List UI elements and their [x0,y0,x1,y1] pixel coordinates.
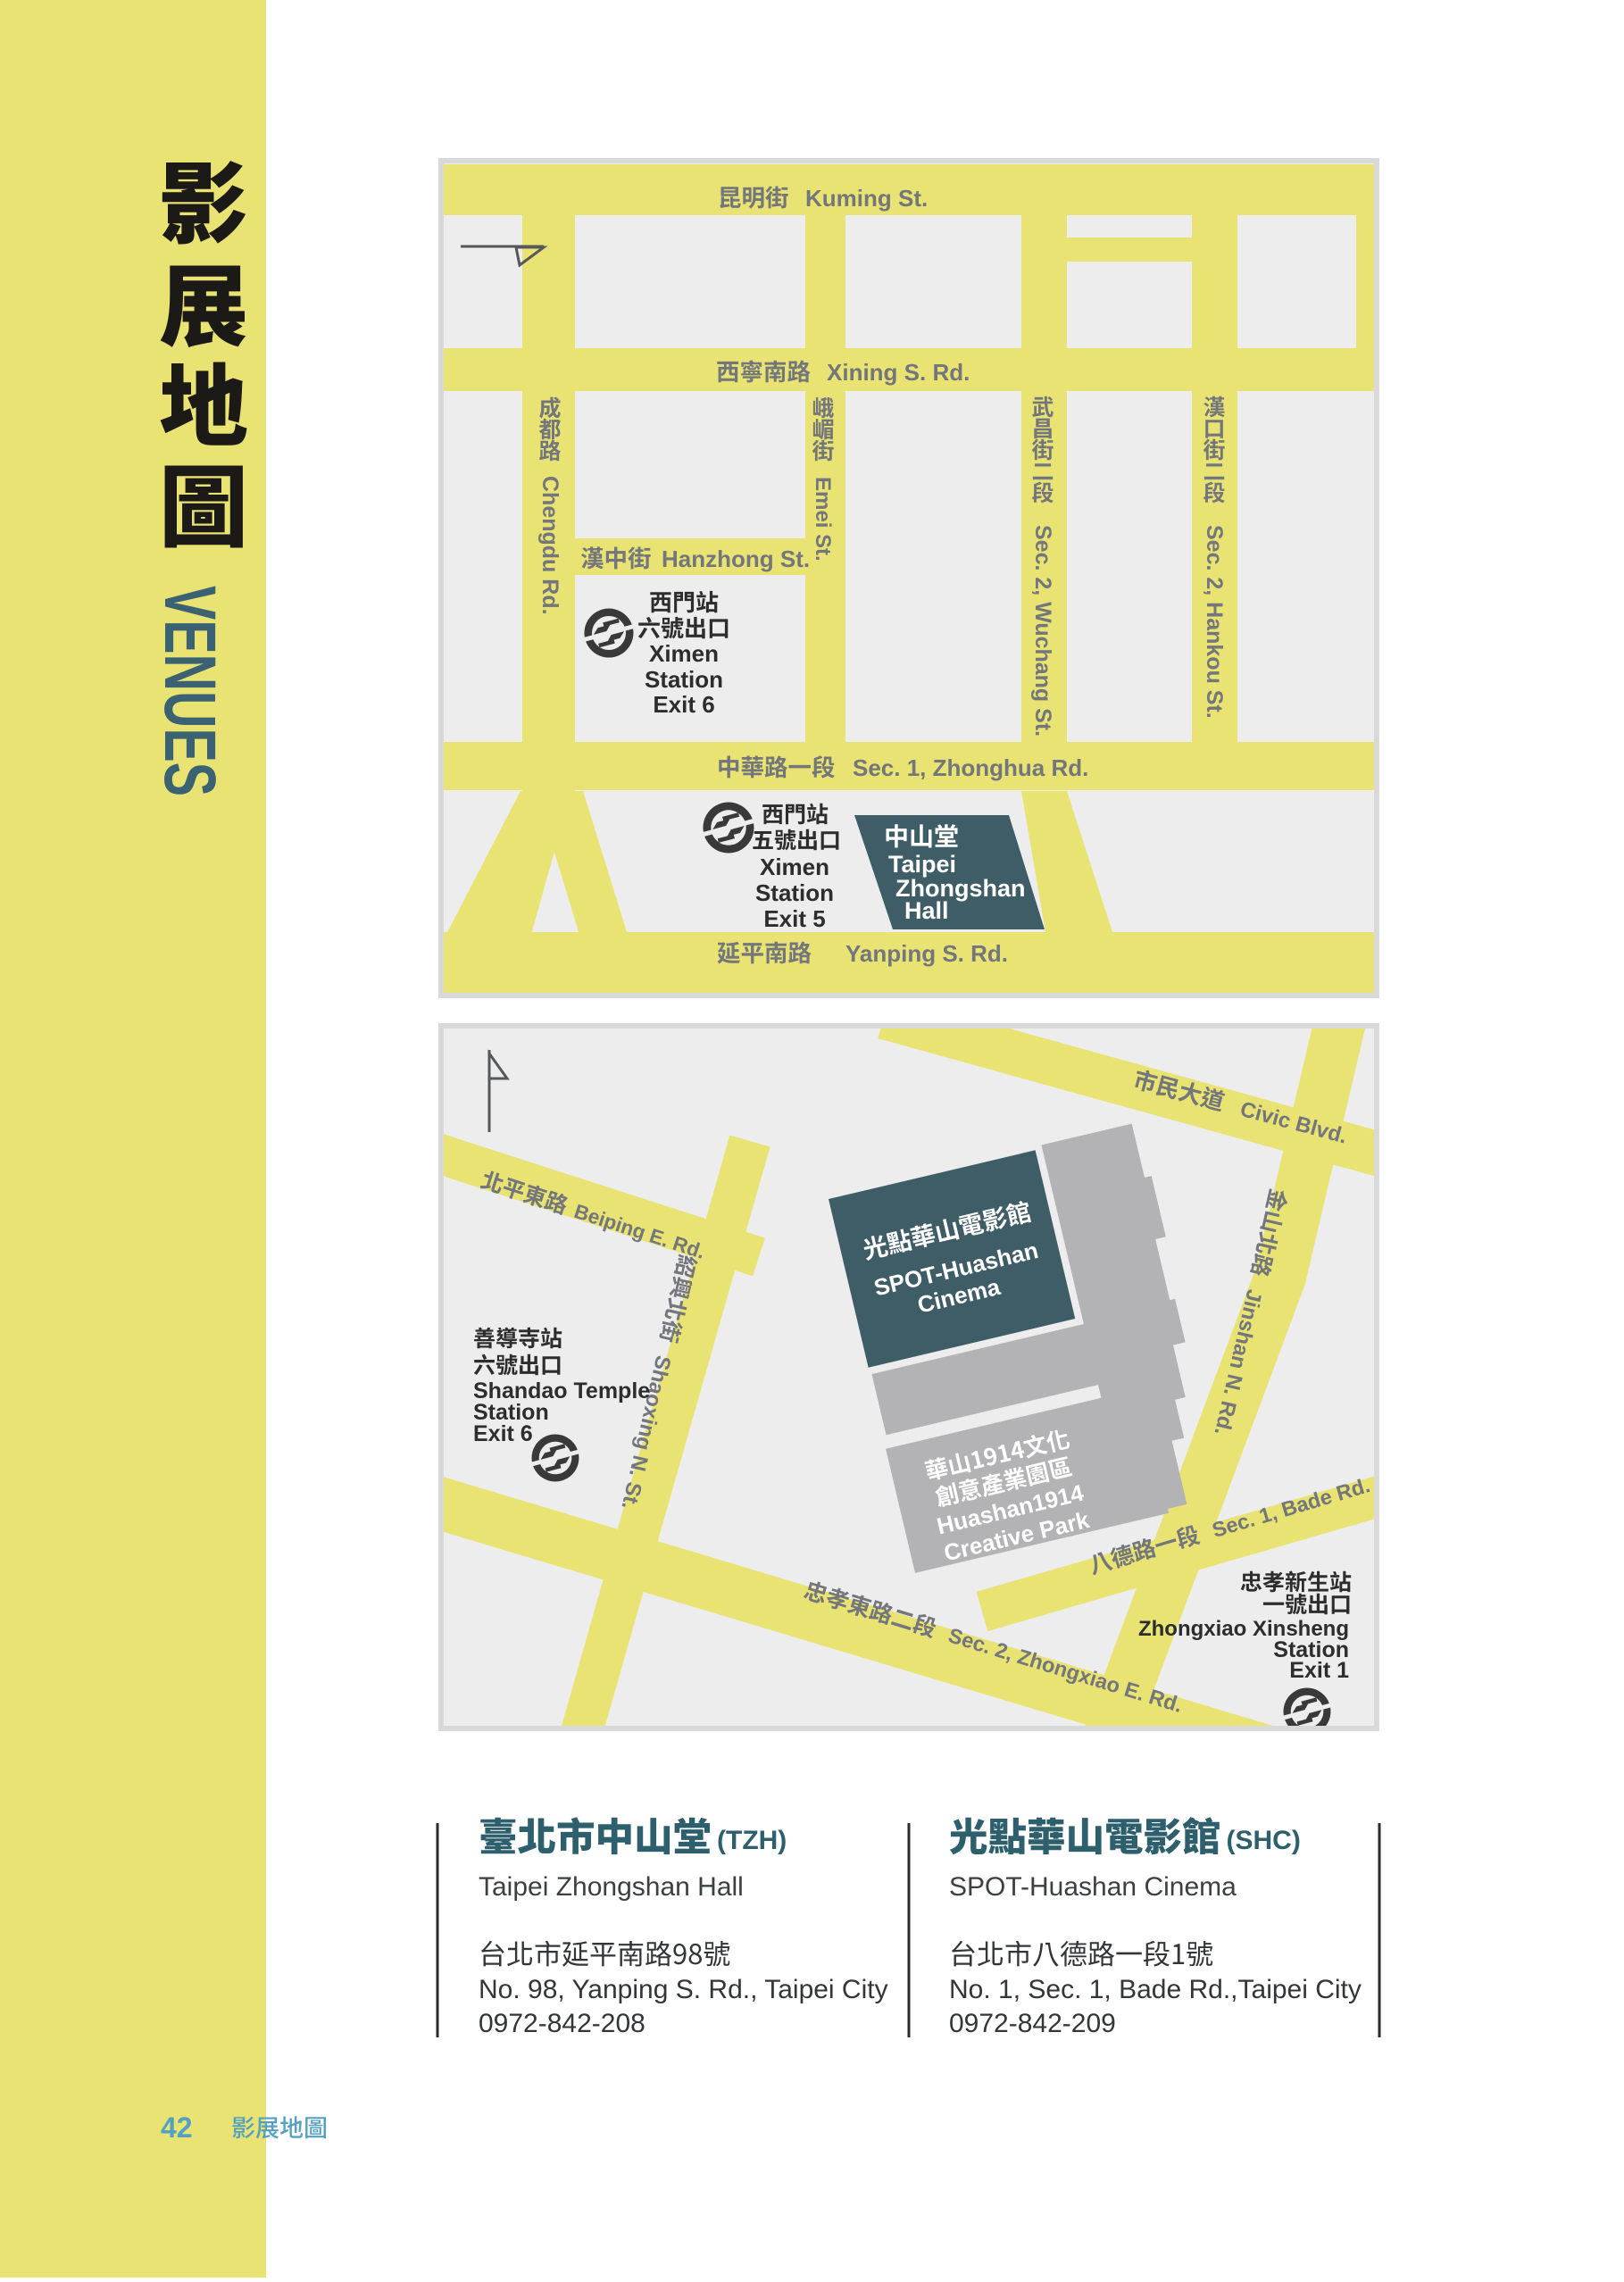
svg-text:0972-842-208: 0972-842-208 [479,2009,645,2038]
svg-text:Ximen: Ximen [760,854,829,880]
svg-text:VENUES: VENUES [150,586,232,796]
svg-text:Exit 5: Exit 5 [763,905,825,932]
svg-text:Yanping S. Rd.: Yanping S. Rd. [845,940,1008,967]
svg-text:Exit 6: Exit 6 [653,691,714,718]
svg-text:Exit 6: Exit 6 [473,1421,533,1446]
svg-text:Hanzhong St.: Hanzhong St. [662,546,810,572]
svg-text:Sec. 1, Zhonghua Rd.: Sec. 1, Zhonghua Rd. [853,754,1088,781]
svg-text:Chengdu Rd.: Chengdu Rd. [537,476,562,615]
svg-text:Station: Station [645,666,723,693]
svg-text:No. 1, Sec. 1, Bade Rd.,Taipei: No. 1, Sec. 1, Bade Rd.,Taipei City [949,1975,1362,2004]
svg-text:Exit 1: Exit 1 [1289,1658,1349,1683]
svg-text:Kuming St.: Kuming St. [805,185,928,212]
svg-text:0972-842-209: 0972-842-209 [949,2009,1116,2038]
svg-text:SPOT-Huashan Cinema: SPOT-Huashan Cinema [949,1872,1237,1902]
svg-text:Ximen: Ximen [649,640,719,667]
svg-text:(SHC): (SHC) [1227,1826,1301,1855]
svg-text:Sec. 2, Hankou St.: Sec. 2, Hankou St. [1202,525,1227,719]
svg-text:Station: Station [755,879,834,906]
svg-text:Taipei: Taipei [888,851,956,878]
svg-text:Taipei Zhongshan Hall: Taipei Zhongshan Hall [479,1872,744,1902]
svg-text:Hall: Hall [904,897,949,924]
svg-text:No. 98, Yanping S. Rd., Taipei: No. 98, Yanping S. Rd., Taipei City [479,1975,888,2004]
svg-text:(TZH): (TZH) [717,1826,787,1855]
svg-text:Xining S. Rd.: Xining S. Rd. [827,359,970,386]
svg-text:42: 42 [161,2111,193,2144]
svg-text:Sec. 2, Wuchang St.: Sec. 2, Wuchang St. [1030,525,1055,737]
svg-text:Emei St.: Emei St. [811,477,835,562]
